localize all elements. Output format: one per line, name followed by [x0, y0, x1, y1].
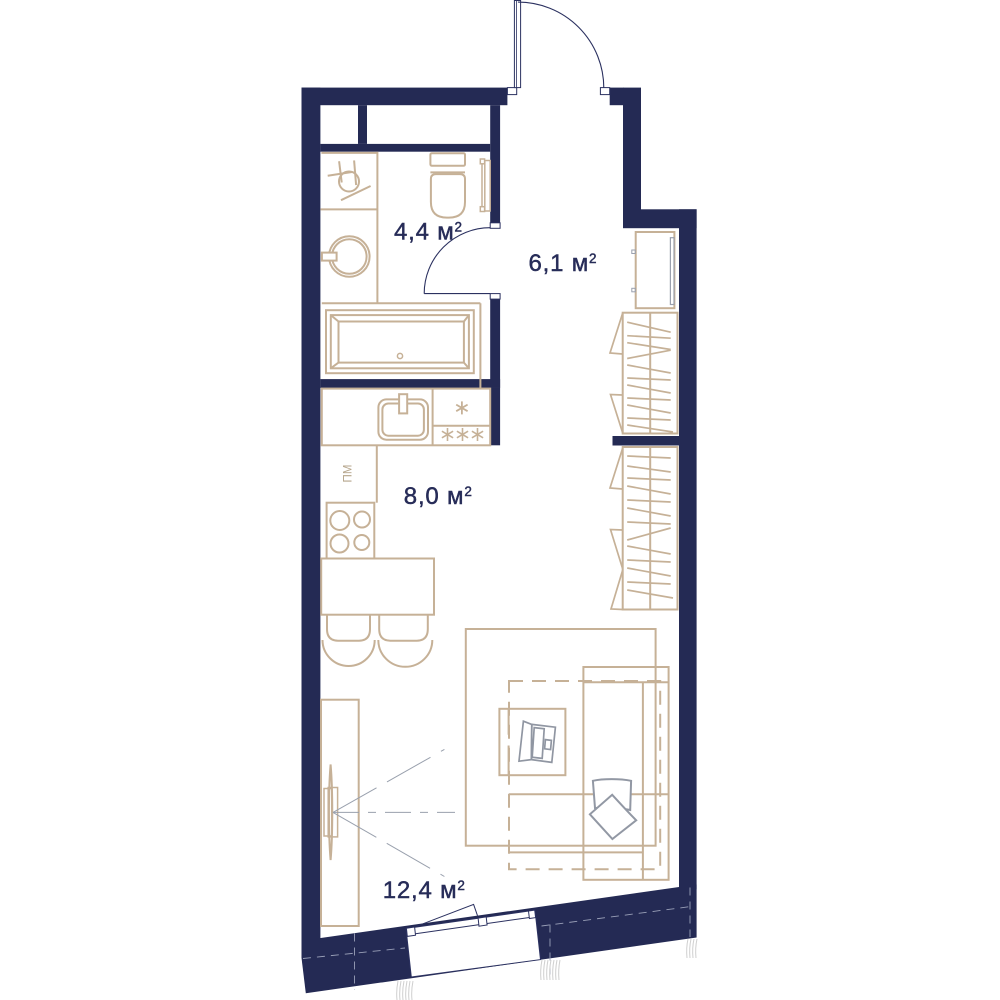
svg-text:12,4 м2: 12,4 м2 — [383, 877, 466, 904]
svg-text:8,0 м2: 8,0 м2 — [404, 483, 473, 510]
svg-text:ПМ: ПМ — [343, 465, 355, 483]
svg-text:4,4 м2: 4,4 м2 — [394, 219, 463, 246]
svg-text:6,1 м2: 6,1 м2 — [529, 250, 598, 277]
